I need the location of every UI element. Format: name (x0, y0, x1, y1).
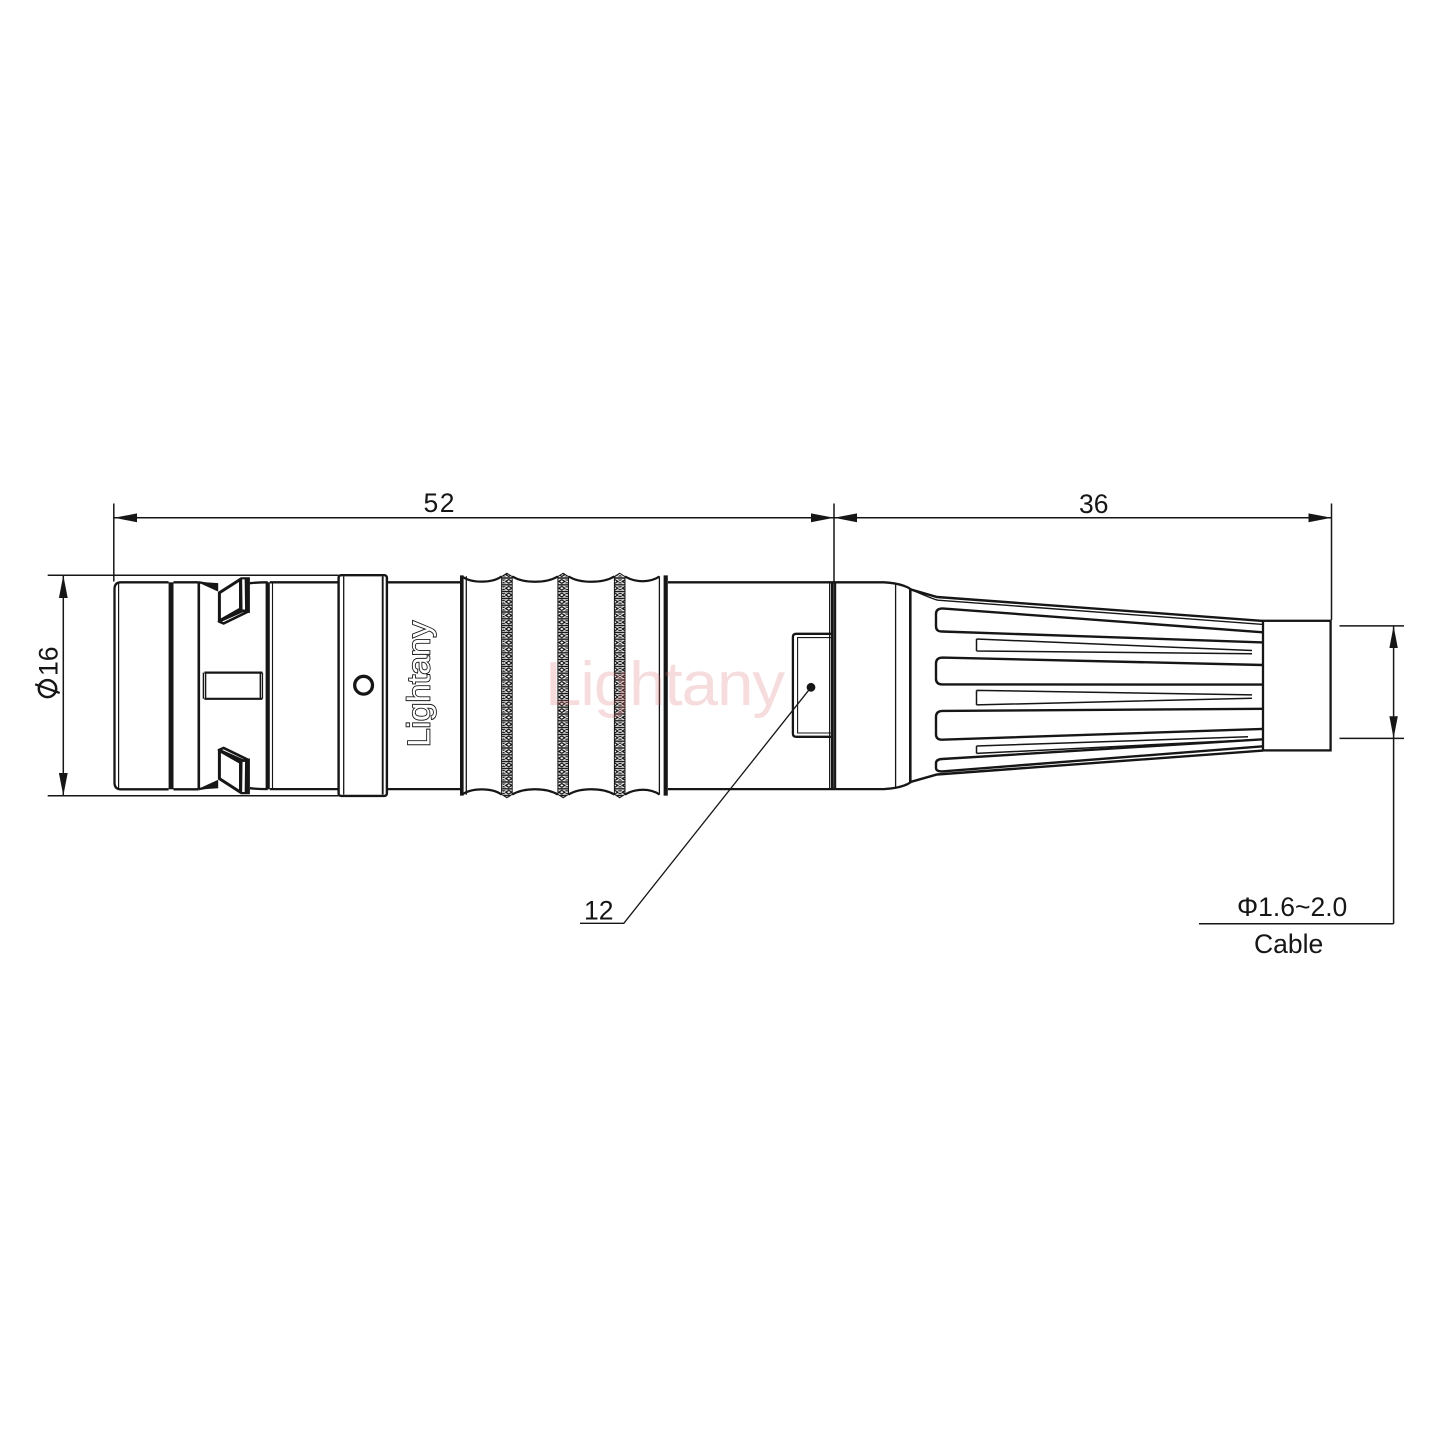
svg-text:12: 12 (584, 895, 613, 925)
svg-text:Lightany: Lightany (401, 621, 437, 747)
svg-text:Φ1.6~2.0: Φ1.6~2.0 (1237, 892, 1347, 922)
svg-text:36: 36 (1079, 489, 1108, 519)
svg-text:Lightany: Lightany (545, 650, 785, 719)
svg-text:52: 52 (424, 488, 456, 518)
svg-text:16: 16 (34, 647, 64, 676)
svg-text:Cable: Cable (1254, 929, 1323, 959)
